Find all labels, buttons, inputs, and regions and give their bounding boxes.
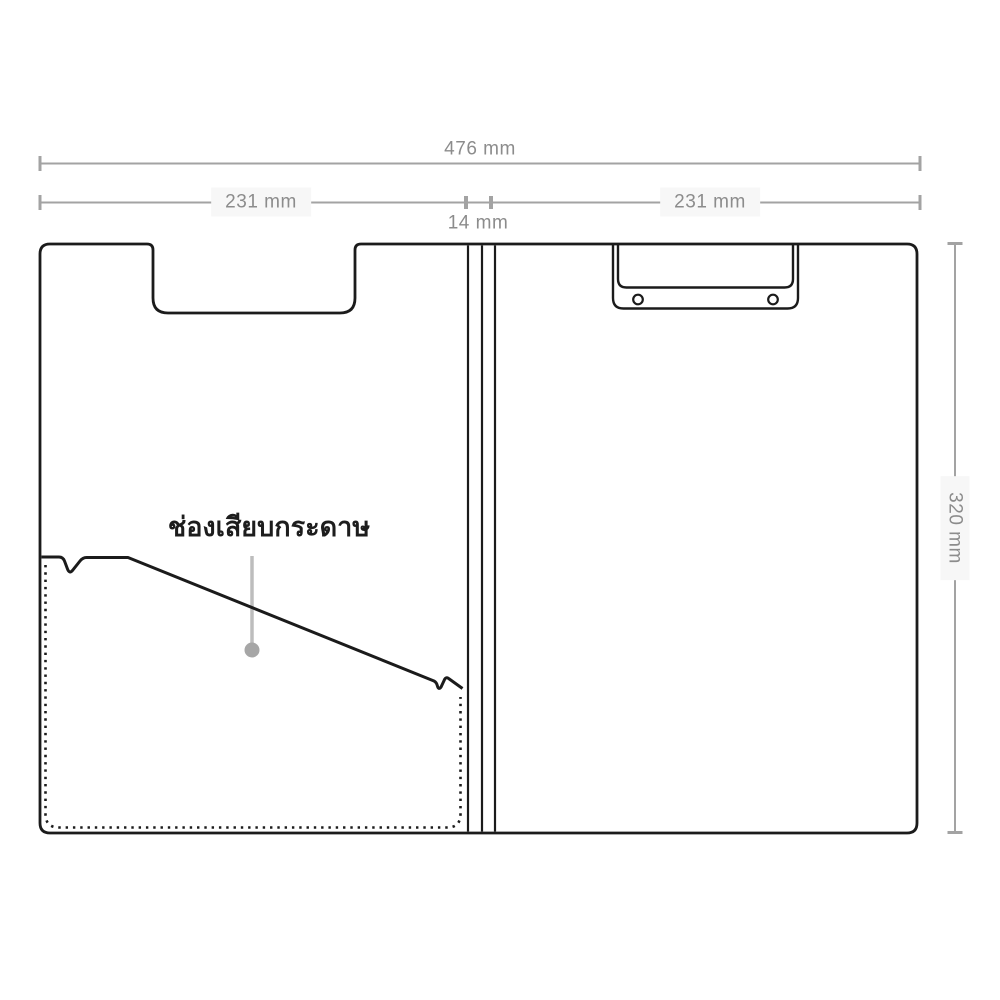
- spine-width-label: 14 mm: [448, 214, 509, 233]
- pocket-annotation-label: ช่องเสียบกระดาษ: [168, 511, 370, 543]
- height-label: 320 mm: [941, 476, 970, 580]
- clip-rivet-right: [768, 295, 778, 305]
- dim-panel-widths: [40, 195, 920, 210]
- left-panel-width-label: 231 mm: [211, 188, 311, 217]
- diagram-canvas: 476 mm 231 mm 14 mm 231 mm 320 mm ช่องเส…: [0, 0, 1000, 1000]
- clip-rivet-left: [633, 295, 643, 305]
- clipboard-clip: [613, 244, 798, 309]
- right-panel-width-label: 231 mm: [660, 188, 760, 217]
- total-width-label: 476 mm: [444, 140, 516, 159]
- spine-fold-lines: [468, 246, 495, 832]
- pocket-leader-dot: [245, 643, 260, 658]
- clip-inner-plate: [618, 244, 793, 288]
